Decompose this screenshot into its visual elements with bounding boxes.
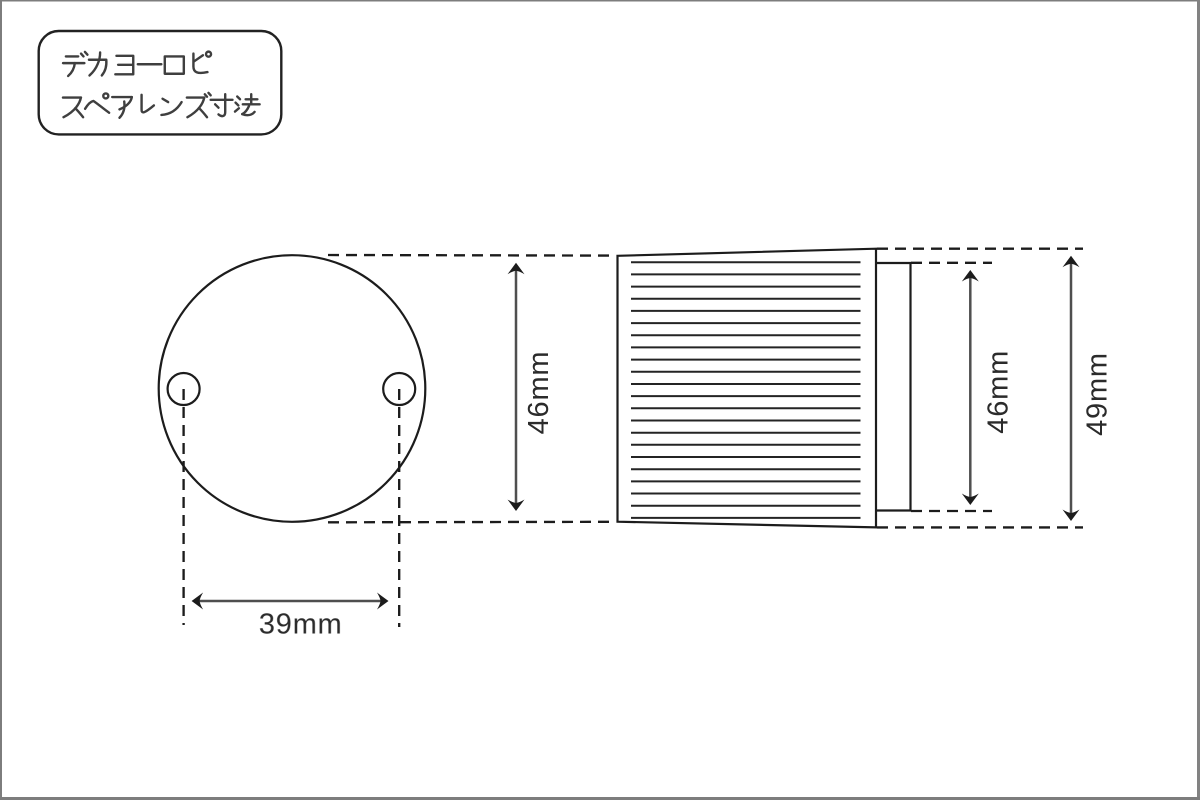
svg-text:46mm: 46mm: [983, 350, 1015, 434]
svg-text:46mm: 46mm: [523, 351, 555, 435]
svg-text:49mm: 49mm: [1082, 352, 1114, 436]
svg-text:39mm: 39mm: [259, 608, 343, 640]
